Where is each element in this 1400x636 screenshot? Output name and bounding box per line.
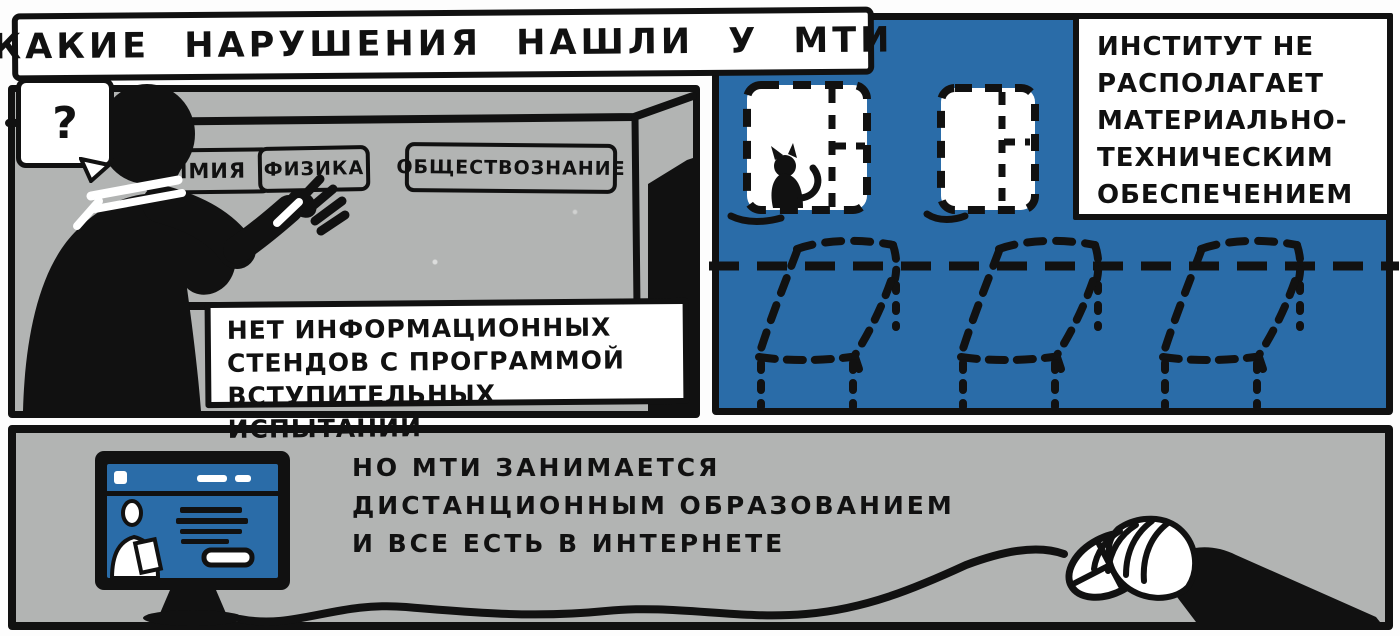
classroom-caption: НЕТ ИНФОРМАЦИОННЫХ СТЕНДОВ С ПРОГРАММОЙ … <box>205 298 690 408</box>
panel-online: НО МТИ ЗАНИМАЕТСЯ ДИСТАНЦИОННЫМ ОБРАЗОВА… <box>8 425 1393 630</box>
monitor-icon <box>95 451 290 626</box>
question-bubble: ? <box>16 78 114 168</box>
webpage-button <box>204 550 252 565</box>
window-frame-2 <box>927 88 1035 220</box>
menu-dash-2 <box>235 475 251 482</box>
question-mark: ? <box>52 98 78 149</box>
title-banner: КАКИЕ НАРУШЕНИЯ НАШЛИ У МТИ <box>12 7 875 82</box>
empty-room-caption: ИНСТИТУТ НЕ РАСПОЛАГАЕТ МАТЕРИАЛЬНО- ТЕХ… <box>1073 13 1393 220</box>
bubble-tail <box>79 157 113 183</box>
browser-logo-square <box>114 471 127 484</box>
header-divider <box>107 491 278 496</box>
page-title: КАКИЕ НАРУШЕНИЯ НАШЛИ У МТИ <box>0 20 894 67</box>
desk-outline-3 <box>1163 241 1300 407</box>
menu-dash-1 <box>197 475 227 482</box>
desk-outline-2 <box>961 241 1098 407</box>
comic-page: ИМИЯ ФИЗИКА ОБЩЕСТВОЗНАНИЕ <box>0 0 1400 636</box>
online-caption: НО МТИ ЗАНИМАЕТСЯ ДИСТАНЦИОННЫМ ОБРАЗОВА… <box>352 449 962 579</box>
